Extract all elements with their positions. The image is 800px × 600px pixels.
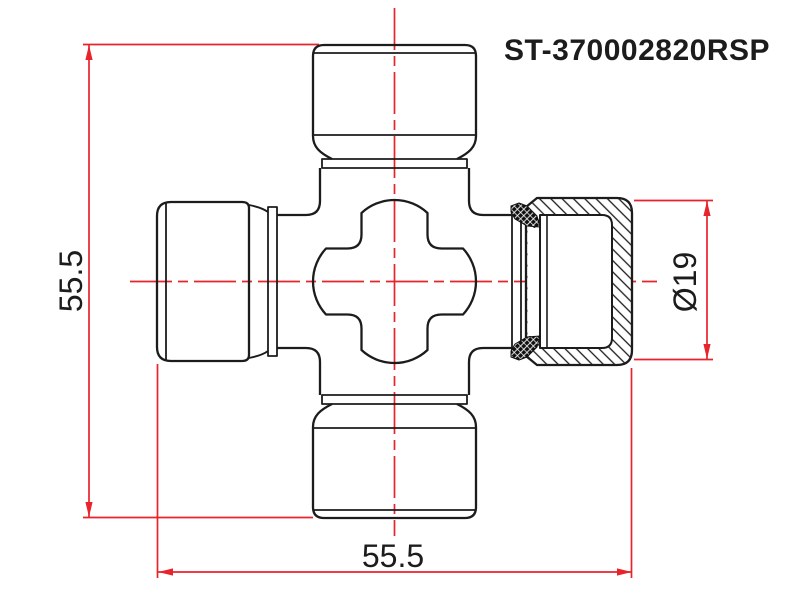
arrowhead-left [158, 568, 173, 575]
arrowhead-up [703, 201, 710, 216]
neck-taper [249, 351, 268, 358]
neck-taper [249, 205, 268, 212]
dimension-diameter-label: Ø19 [669, 252, 701, 312]
arrowhead-up [85, 45, 92, 60]
part-number: ST-370002820RSP [504, 36, 770, 66]
cap-bore [540, 215, 612, 348]
arrowhead-right [617, 568, 632, 575]
arrowhead-down [85, 502, 92, 517]
dimension-height-label: 55.5 [55, 250, 87, 312]
drawing-page: ST-370002820RSP 55.5 55.5 Ø19 [0, 0, 800, 600]
right-bearing-cap-section [511, 198, 632, 365]
arrowhead-down [703, 344, 710, 359]
cap-mouth [528, 228, 540, 336]
dimension-width-label: 55.5 [362, 540, 424, 572]
